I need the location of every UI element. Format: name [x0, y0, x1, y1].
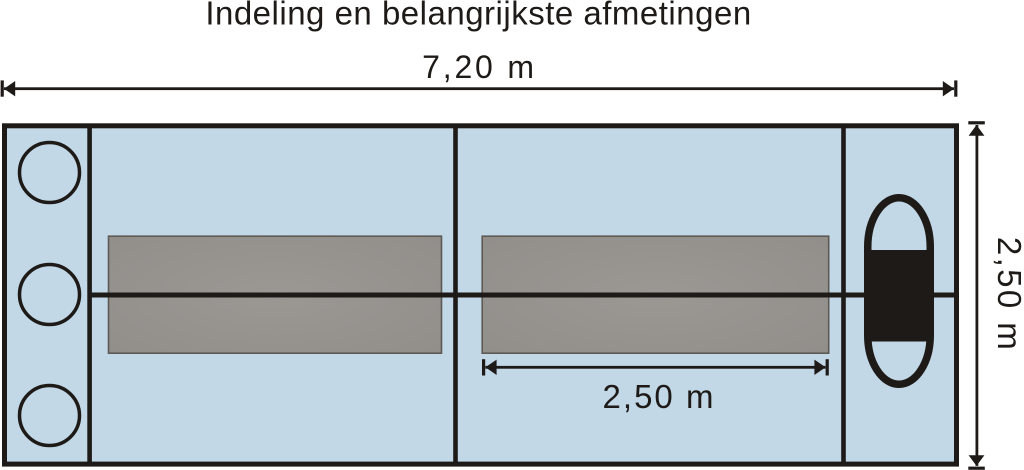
svg-text:7,20 m: 7,20 m: [422, 49, 537, 85]
svg-text:Indeling en belangrijkste afme: Indeling en belangrijkste afmetingen: [205, 0, 751, 32]
svg-text:2,50 m: 2,50 m: [991, 237, 1024, 352]
svg-text:2,50 m: 2,50 m: [603, 378, 716, 415]
